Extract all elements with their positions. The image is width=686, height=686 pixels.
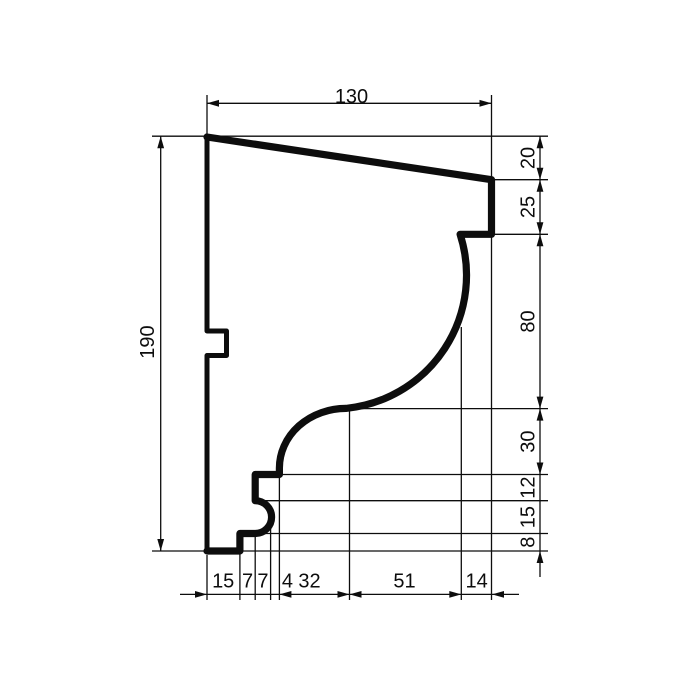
svg-text:12: 12 xyxy=(518,476,540,498)
svg-text:7: 7 xyxy=(257,571,268,593)
svg-text:80: 80 xyxy=(518,310,540,332)
svg-text:8: 8 xyxy=(518,537,540,548)
svg-text:30: 30 xyxy=(518,430,540,452)
svg-text:190: 190 xyxy=(137,325,159,358)
svg-text:15: 15 xyxy=(212,571,234,593)
svg-text:20: 20 xyxy=(518,147,540,169)
svg-text:130: 130 xyxy=(335,86,368,108)
svg-text:4: 4 xyxy=(282,571,293,593)
svg-text:32: 32 xyxy=(298,571,320,593)
svg-text:7: 7 xyxy=(242,571,253,593)
svg-text:15: 15 xyxy=(518,506,540,528)
svg-text:25: 25 xyxy=(518,196,540,218)
svg-text:51: 51 xyxy=(393,571,415,593)
svg-text:14: 14 xyxy=(465,571,487,593)
